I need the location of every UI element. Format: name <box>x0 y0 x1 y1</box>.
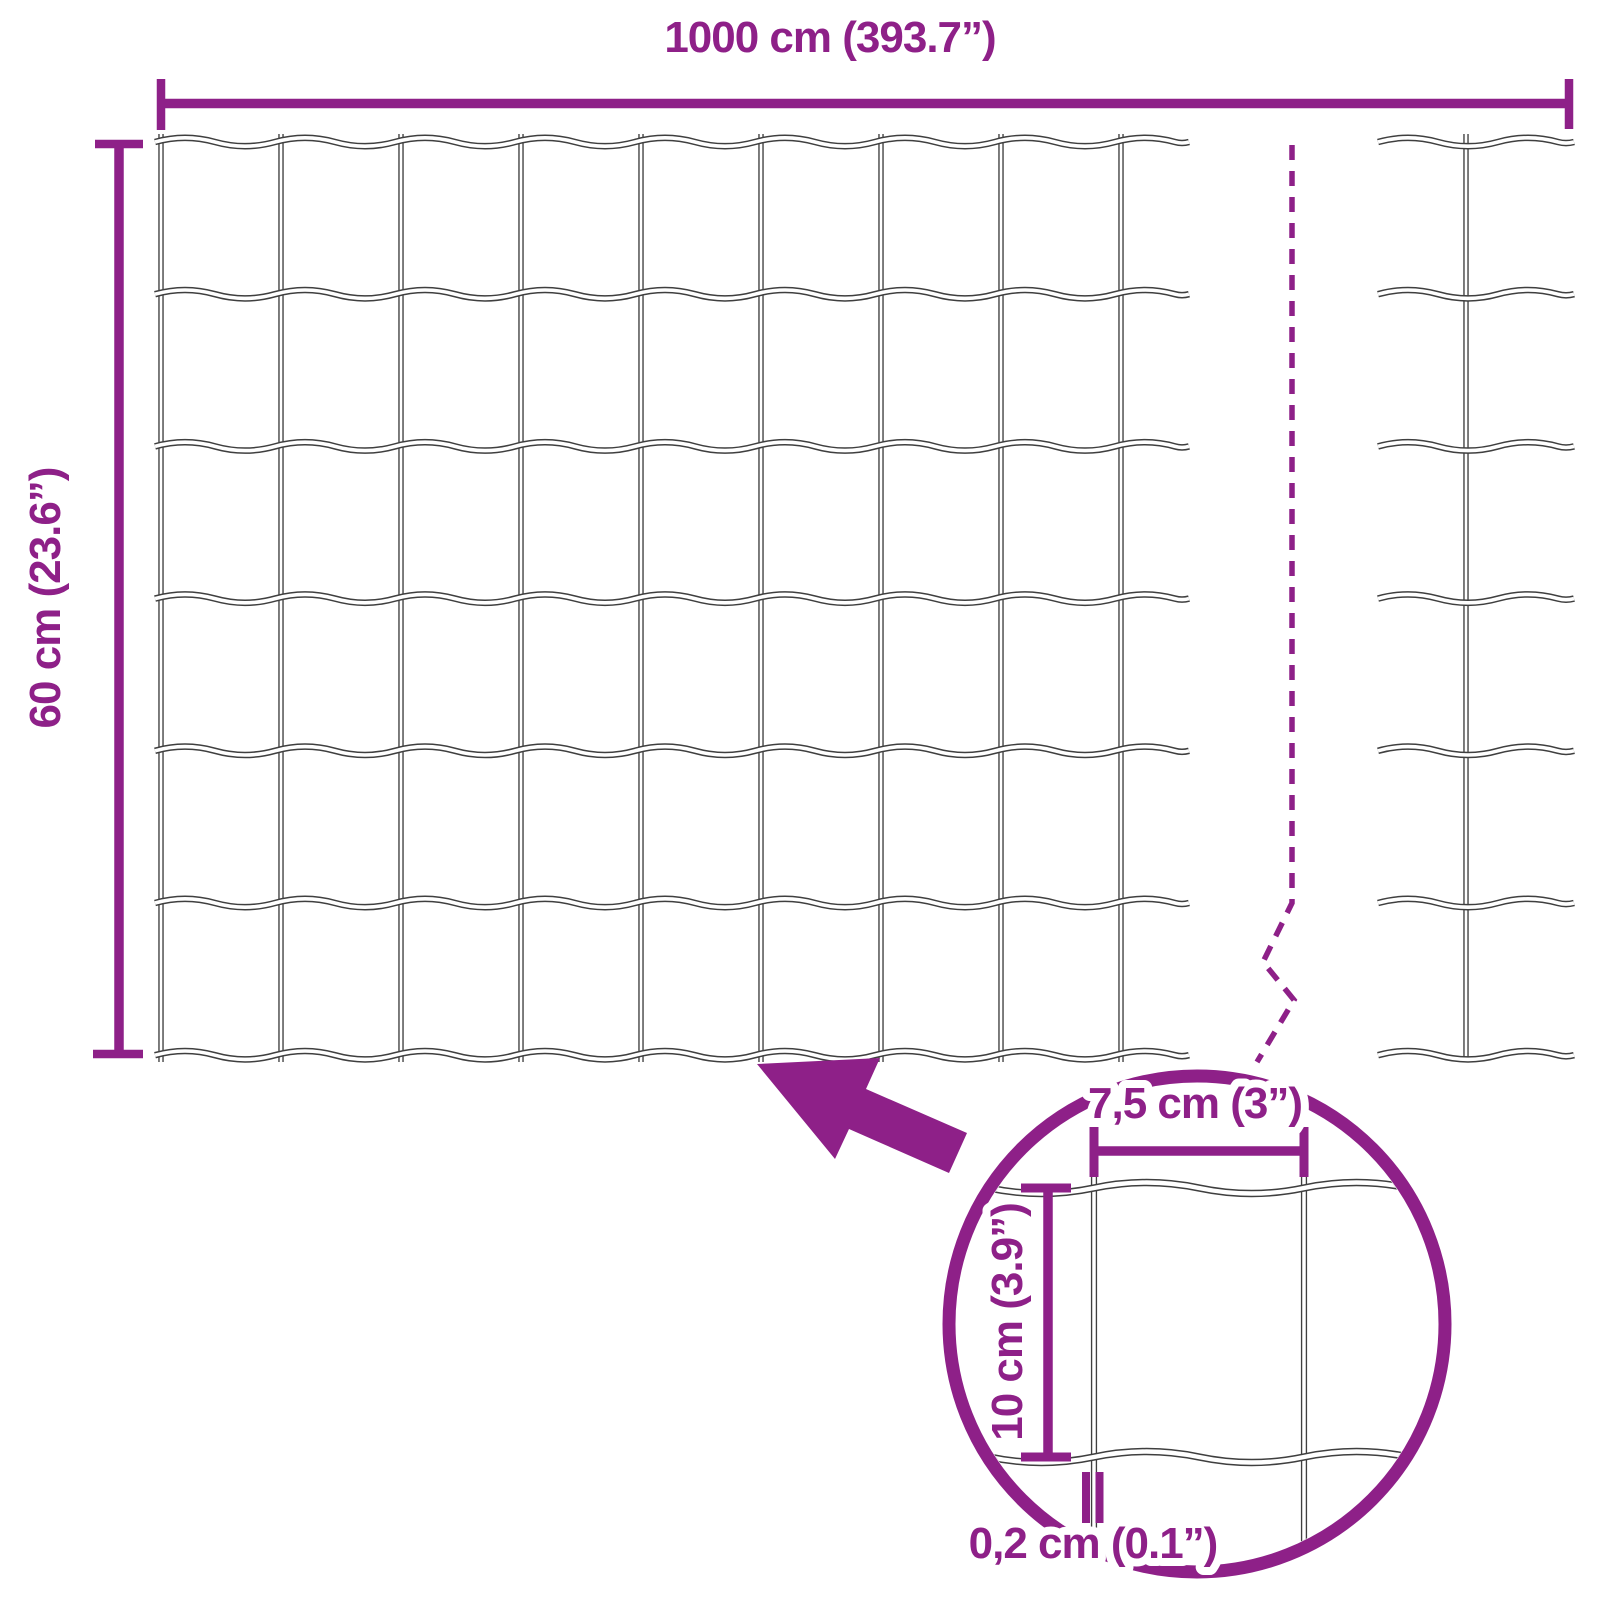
fence-dimension-drawing: 1000 cm (393.7”) 60 cm (23.6”) 7,5 cm (3… <box>0 0 1600 1600</box>
fence-mesh-continuation-section <box>1378 134 1574 1062</box>
overall-height-dimension: 60 cm (23.6”) <box>21 144 143 1054</box>
wire-thickness-label: 0,2 cm (0.1”) <box>969 1519 1218 1568</box>
zoom-pointer-arrow-icon <box>757 1058 967 1173</box>
wire-segment <box>155 747 1189 755</box>
length-break-dashed-line <box>1257 145 1294 1062</box>
overall-width-label: 1000 cm (393.7”) <box>664 13 995 62</box>
wire-segment <box>155 899 1189 907</box>
cell-width-label: 7,5 cm (3”) <box>1088 1079 1302 1128</box>
overall-width-dimension: 1000 cm (393.7”) <box>161 13 1569 130</box>
wire-segment <box>155 290 1189 298</box>
wire-thickness-left-tick <box>1082 1472 1090 1523</box>
overall-height-label: 60 cm (23.6”) <box>21 468 70 729</box>
wire-segment <box>155 138 1189 146</box>
fence-mesh-main-section <box>155 134 1189 1062</box>
detail-zoom-lens: 7,5 cm (3”) 10 cm (3.9”) 0,2 cm (0.1”) <box>884 1076 1514 1572</box>
cell-height-label: 10 cm (3.9”) <box>983 1203 1032 1440</box>
wire-segment <box>155 1051 1189 1059</box>
wire-thickness-right-tick <box>1096 1472 1104 1523</box>
product-dimension-diagram: 1000 cm (393.7”) 60 cm (23.6”) 7,5 cm (3… <box>0 0 1600 1600</box>
wire-segment <box>155 442 1189 450</box>
wire-segment <box>155 594 1189 602</box>
